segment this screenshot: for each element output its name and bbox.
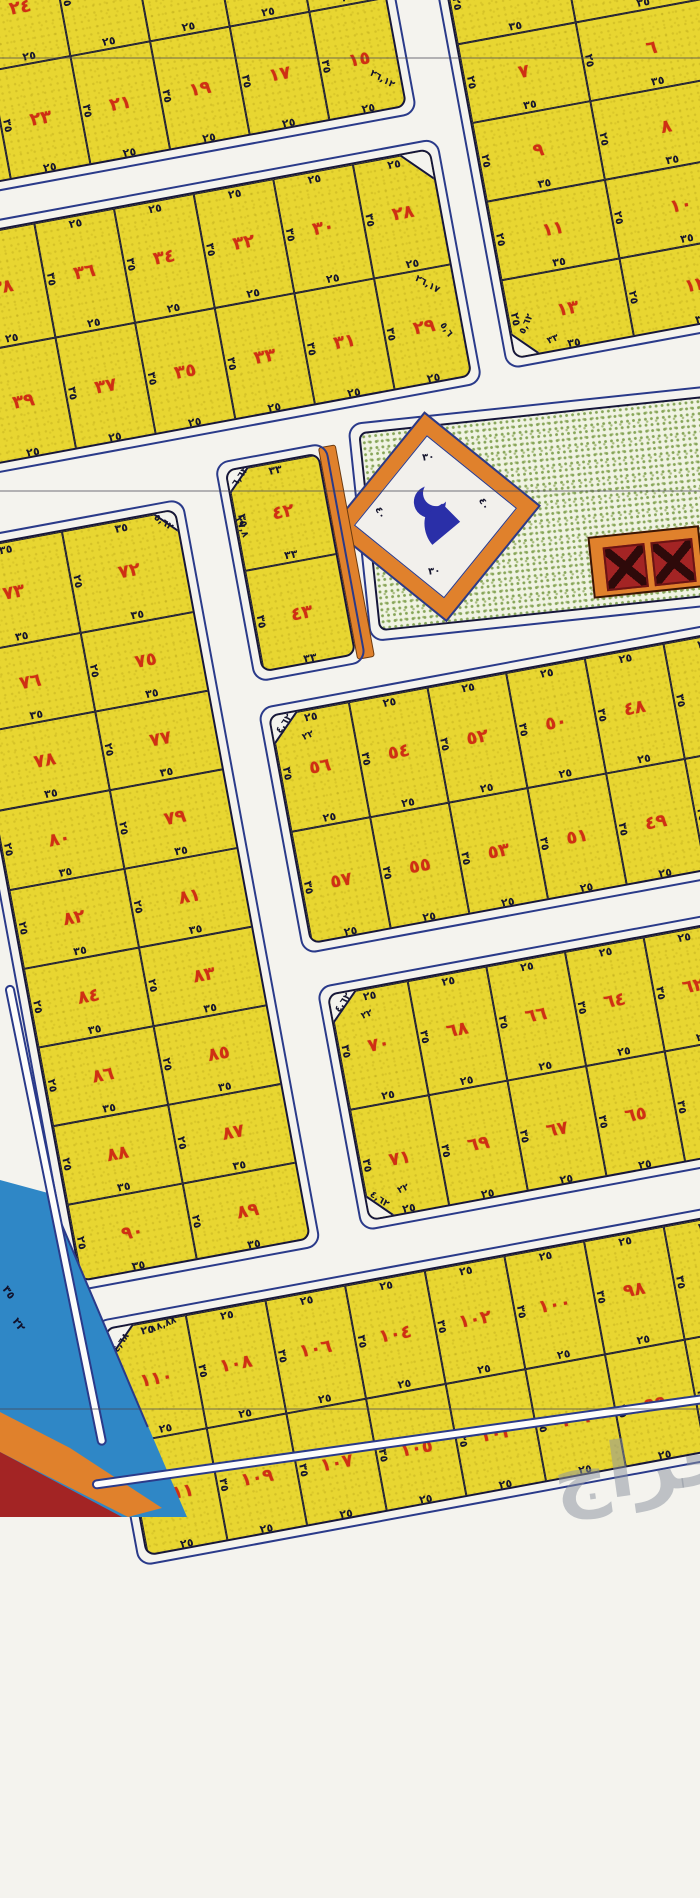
plot-number: ١٩ <box>187 76 212 101</box>
depth-dim: ٢٥ <box>117 821 130 836</box>
width-dim: ٢٥ <box>181 20 196 33</box>
plot-number: ٣٢ <box>231 230 256 255</box>
width-dim: ٣٥ <box>636 0 651 9</box>
depth-dim: ٣٥ <box>418 1029 431 1044</box>
plot-number: ٥ <box>502 0 517 4</box>
width-dim: ٢٥ <box>343 925 358 938</box>
depth-dim: ٣٥ <box>359 751 372 766</box>
depth-dim: ٣٥ <box>284 227 297 242</box>
depth-dim: ٣٥ <box>617 822 630 837</box>
plot-number: ٣٦ <box>72 260 97 285</box>
plot-map-scan: { "map": { "rotation_deg": -10.5, "color… <box>0 0 700 1517</box>
plot-number: ١١٠ <box>138 1365 174 1392</box>
depth-dim: ٣٥ <box>515 1304 528 1319</box>
depth-dim: ٣٥ <box>517 722 530 737</box>
width-dim: ٢٥ <box>386 158 401 171</box>
depth-dim: ٣٥ <box>45 272 58 287</box>
width-dim: ٢٥ <box>158 1422 173 1435</box>
plot-number: ٢٢ <box>87 0 112 5</box>
depth-dim: ٣٥ <box>674 1274 687 1289</box>
depth-dim: ٣٥ <box>66 386 79 401</box>
width-dim: ٣٥ <box>114 522 129 535</box>
plot-٤٣: ٤٣٣٣٣٥ <box>245 553 356 672</box>
depth-dim: ٣٥ <box>438 736 451 751</box>
depth-dim: ٢٥ <box>88 663 101 678</box>
diamond-dim-top: ٣٠ <box>422 452 435 464</box>
width-dim: ٢٥ <box>618 652 633 665</box>
width-dim: ٣٥ <box>14 630 29 643</box>
plot-number: ٢١ <box>108 91 133 116</box>
width-dim: ٢٥ <box>246 287 261 300</box>
width-dim: ٢٥ <box>325 272 340 285</box>
plot-number: ٦٦ <box>523 1003 548 1028</box>
width-dim: ٢٥ <box>299 1294 314 1307</box>
depth-dim: ٣٥ <box>381 865 394 880</box>
width-dim: ٢٥ <box>179 1537 194 1550</box>
plot-number: ١١ <box>540 217 565 242</box>
width-dim: ٢٥ <box>636 752 651 765</box>
plot-number: ٦ <box>644 37 659 60</box>
plot-number: ٧٨ <box>32 748 57 773</box>
plot-number: ٧٧ <box>148 727 173 752</box>
plot-number: ١٠٠ <box>536 1291 572 1318</box>
width-dim: ٣٥ <box>679 232 694 245</box>
scan-fold-line <box>0 1408 700 1410</box>
depth-dim: ٣٥ <box>146 371 159 386</box>
width-dim: ٢٥ <box>598 945 613 958</box>
width-dim: ٣٥ <box>551 255 566 268</box>
width-dim: ٢٥ <box>480 1187 495 1200</box>
plot-number: ٣٠ <box>311 215 336 240</box>
width-dim: ٣٥ <box>159 765 174 778</box>
depth-dim: ٣٥ <box>597 1114 610 1129</box>
width-dim: ٢٥ <box>303 710 318 723</box>
depth-dim: ٢٥ <box>60 1157 73 1172</box>
plot-number: ٨٦ <box>90 1063 115 1088</box>
width-dim: ٢٥ <box>68 217 83 230</box>
depth-dim: ٣٥ <box>575 1000 588 1015</box>
depth-dim: ٣٥ <box>217 1477 230 1492</box>
width-dim: ٢٥ <box>500 895 515 908</box>
width-dim: ٢٥ <box>86 316 101 329</box>
depth-dim: ٣٥ <box>297 1462 310 1477</box>
width-dim: ٢٥ <box>556 1348 571 1361</box>
width-dim: ٢٥ <box>558 767 573 780</box>
width-dim: ٢٥ <box>519 960 534 973</box>
plot-number: ٣١ <box>332 330 357 355</box>
plot-number: ١٧ <box>267 61 292 86</box>
depth-dim: ٢٥ <box>465 75 478 90</box>
width-dim: ٣٥ <box>508 19 523 32</box>
plot-number: ٤٨ <box>622 695 647 720</box>
width-dim: ٣٣ <box>268 464 283 477</box>
width-dim: ٣٥ <box>130 608 145 621</box>
plot-number: ١٠ <box>668 193 693 218</box>
width-dim: ٣٥ <box>116 1180 131 1193</box>
width-dim: ٢٥ <box>418 1492 433 1505</box>
plot-number: ٥٦ <box>307 754 332 779</box>
block-B: ٥٣٥٣٥٢٥٤٣٥٣٥٢٥٧٣٥٢٥٦٣٥٢٥٩٣٥٢٥٨٣٥٢٥١١٣٥٢٥… <box>441 0 700 359</box>
width-dim: ٣٥ <box>537 177 552 190</box>
depth-dim: ٣٥ <box>276 1348 289 1363</box>
width-dim: ٢٥ <box>441 975 456 988</box>
width-dim: ٣٥ <box>566 336 581 349</box>
depth-dim: ٣٥ <box>675 1099 688 1114</box>
depth-dim: ٣٥ <box>124 257 137 272</box>
depth-dim: ٣٥ <box>497 1015 510 1030</box>
width-dim: ٢٥ <box>658 866 673 879</box>
width-dim: ٢٥ <box>400 796 415 809</box>
width-dim: ٢٥ <box>339 1507 354 1520</box>
width-dim: ٢٥ <box>477 1363 492 1376</box>
width-dim: ٣٥ <box>102 1102 117 1115</box>
width-dim: ٢٥ <box>148 202 163 215</box>
depth-dim: ٢٥ <box>612 210 625 225</box>
width-dim: ٢٥ <box>459 1074 474 1087</box>
plot-number: ٣٩ <box>11 389 36 414</box>
block-H: ٧٠٢٥٢٥٣٥٦٨٢٥٢٥٣٥٦٦٢٥٢٥٣٥٦٤٢٥٢٥٣٥٦٢٢٥٢٥٣٥… <box>327 907 700 1222</box>
depth-dim: ٢٥ <box>17 921 30 936</box>
plot-number: ٧ <box>517 60 532 83</box>
plot-number: ٥١ <box>564 824 589 849</box>
width-dim: ٣٥ <box>650 74 665 87</box>
depth-dim: ٣٥ <box>595 707 608 722</box>
width-dim: ٣٣ <box>283 548 298 561</box>
mosque-crescent-icon <box>404 478 467 553</box>
facility-building <box>587 525 700 598</box>
width-dim: ٢٥ <box>107 430 122 443</box>
depth-dim: ٣٥ <box>361 1157 374 1172</box>
width-dim: ٣٥ <box>665 153 680 166</box>
plot-number: ٤٩ <box>643 810 668 835</box>
plot-number: ٥٤ <box>386 739 411 764</box>
depth-dim: ٣٥ <box>255 614 268 629</box>
width-dim: ٢٥ <box>458 1264 473 1277</box>
width-dim: ٣٥ <box>43 787 58 800</box>
width-dim: ٢٥ <box>538 1059 553 1072</box>
width-dim: ٢٥ <box>538 1249 553 1262</box>
plot-number: ٨٨ <box>105 1141 130 1166</box>
plot-number: ١٥ <box>347 47 372 72</box>
depth-dim: ٢٥ <box>175 1135 188 1150</box>
depth-dim: ٢٥ <box>0 763 1 778</box>
plot-number: ٧٥ <box>133 648 158 673</box>
depth-dim: ٢٥ <box>190 1214 203 1229</box>
width-dim: ٢٥ <box>379 1279 394 1292</box>
width-dim: ٢٥ <box>166 301 181 314</box>
plot-number: ٣٤ <box>151 245 176 270</box>
plot-number: ٦٧ <box>544 1117 569 1142</box>
depth-dim: ٢٥ <box>46 1078 59 1093</box>
width-dim: ٢٥ <box>267 401 282 414</box>
plot-number: ١٠٤ <box>377 1320 413 1347</box>
plot-number: ٣٨ <box>0 275 15 300</box>
depth-dim: ٢٥ <box>583 53 596 68</box>
width-dim: ٢٥ <box>397 1377 412 1390</box>
depth-dim: ٢٥ <box>103 742 116 757</box>
width-dim: ٣٥ <box>232 1159 247 1172</box>
plot-number: ٤٣ <box>289 600 314 625</box>
plot-number: ٣٣ <box>252 344 277 369</box>
width-dim: ٣٥ <box>522 98 537 111</box>
width-dim: ٢٥ <box>361 102 376 115</box>
depth-dim: ٢٥ <box>31 999 44 1014</box>
depth-dim: ٣٥ <box>385 327 398 342</box>
plot-number: ٩٠ <box>120 1220 145 1245</box>
width-dim: ٢٥ <box>25 445 40 458</box>
depth-dim: ٢٥ <box>161 1057 174 1072</box>
depth-dim: ٣٥ <box>240 73 253 88</box>
depth-dim: ٣٥ <box>160 88 173 103</box>
width-dim: ٢٥ <box>539 666 554 679</box>
width-dim: ٢٥ <box>426 371 441 384</box>
depth-dim: ٢٥ <box>627 290 640 305</box>
width-dim: ٢٥ <box>479 781 494 794</box>
plot-number: ٥٢ <box>465 724 490 749</box>
depth-dim: ٣٥ <box>654 986 667 1001</box>
depth-dim: ٣٥ <box>204 242 217 257</box>
width-dim: ٢٥ <box>0 232 1 245</box>
depth-dim: ٣٥ <box>305 341 318 356</box>
width-dim: ٢٥ <box>380 1088 395 1101</box>
building-x-icon <box>603 543 649 591</box>
width-dim: ٢٥ <box>187 415 202 428</box>
plot-number: ١٠٦ <box>297 1335 333 1362</box>
width-dim: ٢٥ <box>637 1158 652 1171</box>
width-dim: ٣٥ <box>144 687 159 700</box>
width-dim: ٢٥ <box>695 1030 700 1043</box>
width-dim: ٢٥ <box>42 161 57 174</box>
plot-number: ١٠٢ <box>457 1306 493 1333</box>
building-x-icon <box>650 538 696 586</box>
width-dim: ٣٥ <box>217 1080 232 1093</box>
plot-number: ٧٠ <box>366 1032 391 1057</box>
depth-dim: ٢٥ <box>480 153 493 168</box>
plot-number: ٨٥ <box>206 1041 231 1066</box>
depth-dim: ٣٥ <box>225 356 238 371</box>
depth-dim: ٣٥ <box>356 1333 369 1348</box>
width-dim: ٢٥ <box>422 910 437 923</box>
plot-number: ٢٤ <box>7 0 32 20</box>
plot-number: ٨٤ <box>76 984 101 1009</box>
width-dim: ٢٥ <box>227 187 242 200</box>
plot-number: ٤٢ <box>270 499 295 524</box>
block-A: ٢٦٢٥٢٥٣٥٢٤٢٥٢٥٣٥٢٢٢٥٢٥٣٥٢٠٢٥٢٥٣٥١٨٢٥٢٥٣٥… <box>0 0 407 187</box>
depth-dim: ٣٥ <box>302 880 315 895</box>
plot-number: ٧٦ <box>18 670 43 695</box>
mosque-block: ٣٠ ٤٠ ٣٠ ٤٠ <box>358 393 700 632</box>
plot-number: ٨١ <box>177 884 202 909</box>
depth-dim: ٣٥ <box>435 1319 448 1334</box>
width-dim: ٢٥ <box>677 931 692 944</box>
depth-dim: ٣٥ <box>60 0 73 7</box>
plot-number: ٧٢ <box>116 558 141 583</box>
sea-dim-label: ٢٢ <box>10 1315 28 1333</box>
width-dim: ٣٥ <box>73 944 88 957</box>
width-dim: ٢٥ <box>618 1235 633 1248</box>
width-dim: ٢٥ <box>616 1045 631 1058</box>
plot-number: ٢٨ <box>390 201 415 226</box>
mosque-diamond-labels: ٣٠ ٤٠ ٣٠ ٤٠ <box>353 434 518 599</box>
width-dim: ٣٥ <box>0 543 13 556</box>
width-dim: ٢٥ <box>362 989 377 1002</box>
width-dim: ٢٥ <box>401 1202 416 1215</box>
depth-dim: ٢٥ <box>2 842 15 857</box>
width-dim: ٣٥ <box>188 923 203 936</box>
plot-number: ٨٠ <box>47 827 72 852</box>
plot-number: ٩٨ <box>621 1277 646 1302</box>
width-dim: ٢٥ <box>4 331 19 344</box>
depth-dim: ٣٥ <box>439 1143 452 1158</box>
width-dim: ٢٥ <box>261 5 276 18</box>
plot-number: ٢٣ <box>28 106 53 131</box>
depth-dim: ٣٥ <box>138 1492 151 1507</box>
depth-dim: ٣٥ <box>340 1044 353 1059</box>
width-dim: ٢٥ <box>579 881 594 894</box>
width-dim: ٢٥ <box>382 696 397 709</box>
plot-number: ٦٨ <box>445 1018 470 1043</box>
width-dim: ٢٥ <box>101 35 116 48</box>
depth-dim: ٢٥ <box>146 978 159 993</box>
width-dim: ٢٥ <box>559 1172 574 1185</box>
diamond-dim-bottom: ٣٠ <box>428 566 441 578</box>
depth-dim: ٢٥ <box>75 1235 88 1250</box>
depth-dim: ٣٥ <box>81 103 94 118</box>
depth-dim: ٢٥ <box>71 573 84 588</box>
depth-dim: ٢٥ <box>598 132 611 147</box>
plot-number: ٨٩ <box>235 1199 260 1224</box>
width-dim: ٢٥ <box>259 1522 274 1535</box>
sea-dim-label: ٣٥ <box>0 1283 18 1301</box>
plot-number: ٨٢ <box>61 906 86 931</box>
plot-number: ٥٥ <box>407 854 432 879</box>
plot-number: ٢٩ <box>411 315 436 340</box>
depth-dim: ٣٥ <box>594 1289 607 1304</box>
width-dim: ٢٥ <box>281 116 296 129</box>
width-dim: ٣٥ <box>131 1259 146 1272</box>
width-dim: ٢٥ <box>346 386 361 399</box>
width-dim: ٢٥ <box>636 1333 651 1346</box>
plot-number: ٦٩ <box>466 1131 491 1156</box>
plot-number: ٦٤ <box>602 988 627 1013</box>
width-dim: ٣٥ <box>246 1237 261 1250</box>
width-dim: ٢٥ <box>461 681 476 694</box>
depth-dim: ٢٥ <box>132 899 145 914</box>
plot-number: ١١١ <box>159 1479 195 1506</box>
map-plane: ٣٠ ٤٠ ٣٠ ٤٠ ٢٦٢٥٢٥٣٥٢٤٢٥٢٥٣٥٢٢٢٥٢٥٣٥٢٠٢٥… <box>0 0 700 1868</box>
width-dim: ٢٥ <box>405 257 420 270</box>
plot-number: ٣٥ <box>173 359 198 384</box>
plot-number: ١٣ <box>555 296 580 321</box>
plot-number: ٨٧ <box>221 1120 246 1145</box>
scan-fold-line <box>0 57 700 59</box>
depth-dim: ٣٥ <box>281 765 294 780</box>
width-dim: ٢٥ <box>317 1392 332 1405</box>
width-dim: ٣٥ <box>203 1001 218 1014</box>
width-dim: ٣٣ <box>302 651 317 664</box>
diamond-dim-right: ٤٠ <box>476 496 491 512</box>
width-dim: ٢٥ <box>307 173 322 186</box>
diamond-dim-left: ٤٠ <box>372 505 387 521</box>
depth-dim: ٣٥ <box>363 213 376 228</box>
depth-dim: ٣٥ <box>695 807 700 822</box>
width-dim: ٢٥ <box>201 131 216 144</box>
depth-dim: ٣٥ <box>538 836 551 851</box>
width-dim: ٣٥ <box>87 1023 102 1036</box>
depth-dim: ٢٥ <box>494 232 507 247</box>
plot-number: ٥٣ <box>486 839 511 864</box>
plot-number: ٩ <box>531 139 546 162</box>
plot-number: ١٢ <box>683 273 700 298</box>
plot-number: ٦٢ <box>681 974 700 999</box>
depth-dim: ٣٥ <box>459 851 472 866</box>
depth-dim: ٢٥ <box>450 0 463 11</box>
scan-fold-line <box>0 490 700 492</box>
plot-number: ٨٣ <box>191 963 216 988</box>
block-G: ٥٦٢٥٢٥٣٥٥٤٢٥٢٥٣٥٥٢٢٥٢٥٣٥٥٠٢٥٢٥٣٥٤٨٢٥٢٥٣٥… <box>268 628 700 945</box>
plot-number: ٧٩ <box>162 805 187 830</box>
plot-number: ٨ <box>659 115 674 138</box>
width-dim: ٣٥ <box>173 844 188 857</box>
width-dim: ٢٥ <box>697 637 700 650</box>
depth-dim: ٣٥ <box>674 693 687 708</box>
width-dim: ٢٥ <box>498 1478 513 1491</box>
width-dim: ٢٥ <box>219 1309 234 1322</box>
width-dim: ٢٥ <box>322 811 337 824</box>
depth-dim: ٣٥ <box>196 1363 209 1378</box>
plot-number: ٣٧ <box>93 374 118 399</box>
plot-number: ٧٣ <box>1 580 26 605</box>
plot-number: ٦٥ <box>623 1102 648 1127</box>
width-dim: ٣٥ <box>58 866 73 879</box>
width-dim: ٢٥ <box>122 146 137 159</box>
plot-number: ٥٠ <box>543 710 568 735</box>
plot-number: ٧١ <box>387 1146 412 1171</box>
width-dim: ٣٥ <box>29 708 44 721</box>
depth-dim: ٣٥ <box>1 118 14 133</box>
depth-dim: ٣٥ <box>320 59 333 74</box>
width-dim: ٣٥ <box>694 312 700 325</box>
depth-dim: ٣٥ <box>518 1128 531 1143</box>
plot-number: ٥٧ <box>328 868 353 893</box>
plot-number: ١٠٨ <box>218 1350 254 1377</box>
